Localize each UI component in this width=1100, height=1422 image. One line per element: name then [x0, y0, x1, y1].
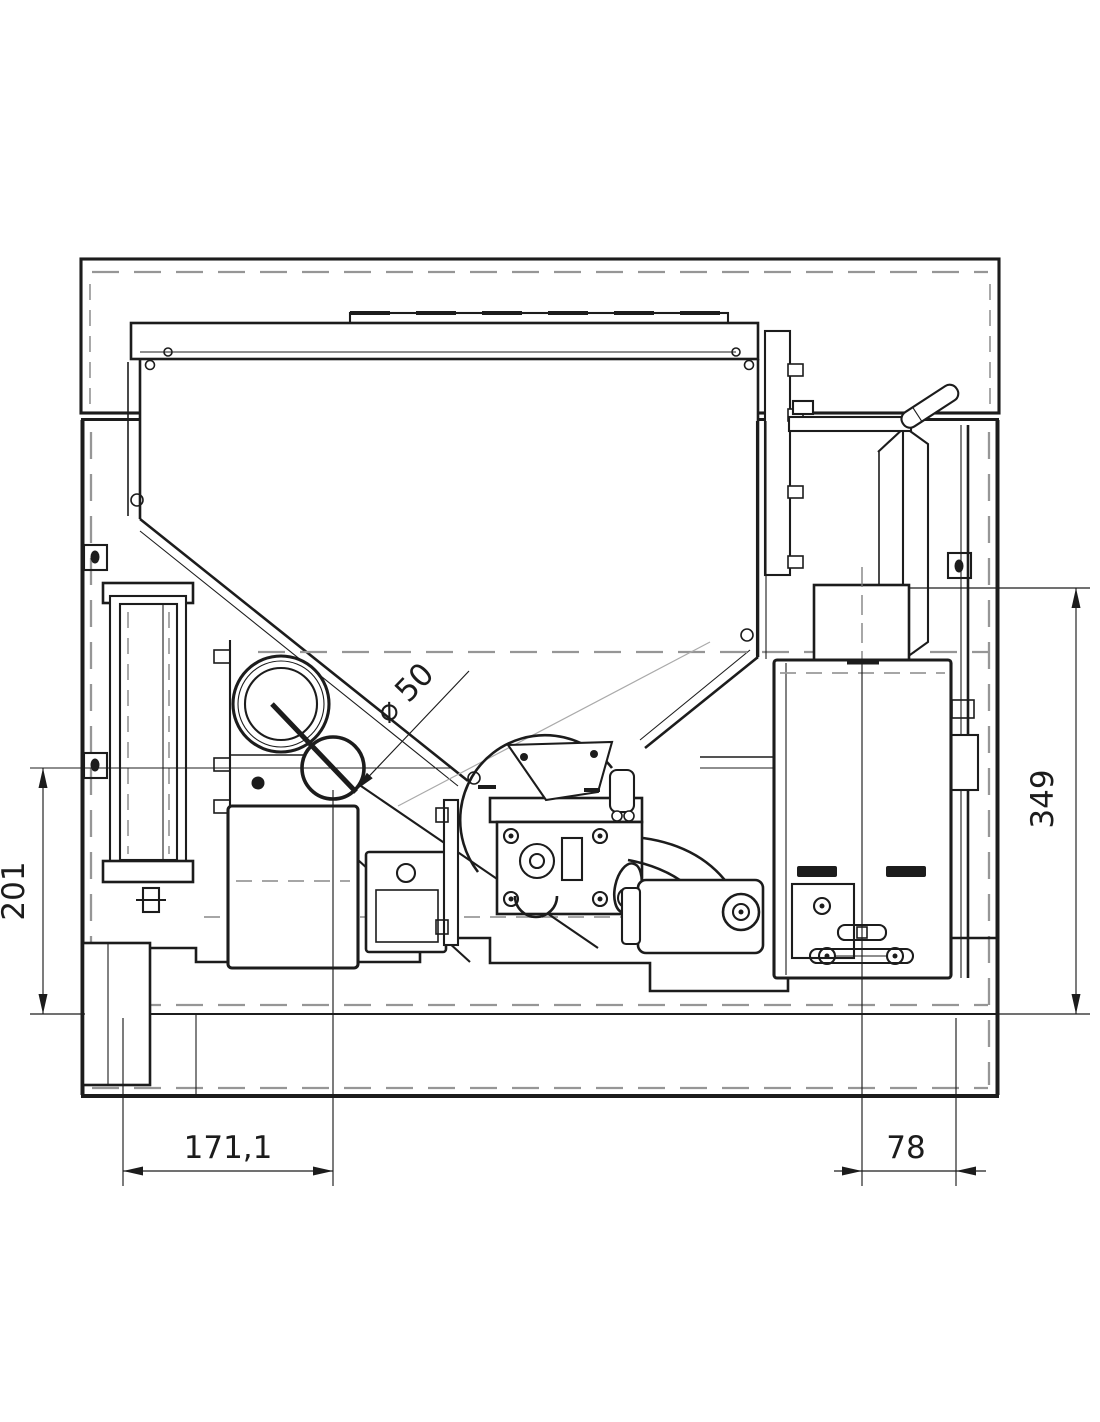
- hopper-lid-plate: [350, 313, 728, 323]
- lower-motor: [622, 880, 763, 953]
- vent-slot: [886, 866, 926, 877]
- gear-motor: [228, 800, 458, 968]
- left-panel: [103, 583, 193, 912]
- hopper-lid-rim: [131, 323, 758, 359]
- hopper-flange: [765, 331, 790, 575]
- dimension-label-201: 201: [0, 861, 32, 920]
- door-handle: [898, 382, 961, 431]
- door-latch: [950, 735, 978, 790]
- motor-block: [228, 806, 358, 968]
- technical-drawing: 201 349 171,1 78 ⌀ 50: [0, 0, 1100, 1422]
- dimension-label-78: 78: [886, 1130, 925, 1166]
- igniter-cylinder: [610, 770, 634, 812]
- dimension-label-171-1: 171,1: [184, 1130, 273, 1166]
- dimension-label-349: 349: [1025, 769, 1061, 828]
- dimension-left-height: 201: [0, 768, 85, 1014]
- handle-bar: [789, 417, 911, 431]
- left-foot: [83, 943, 150, 1085]
- vent-slot: [797, 866, 837, 877]
- technical-drawing-page: 201 349 171,1 78 ⌀ 50: [0, 0, 1100, 1422]
- auger-drive-housing: [233, 656, 329, 752]
